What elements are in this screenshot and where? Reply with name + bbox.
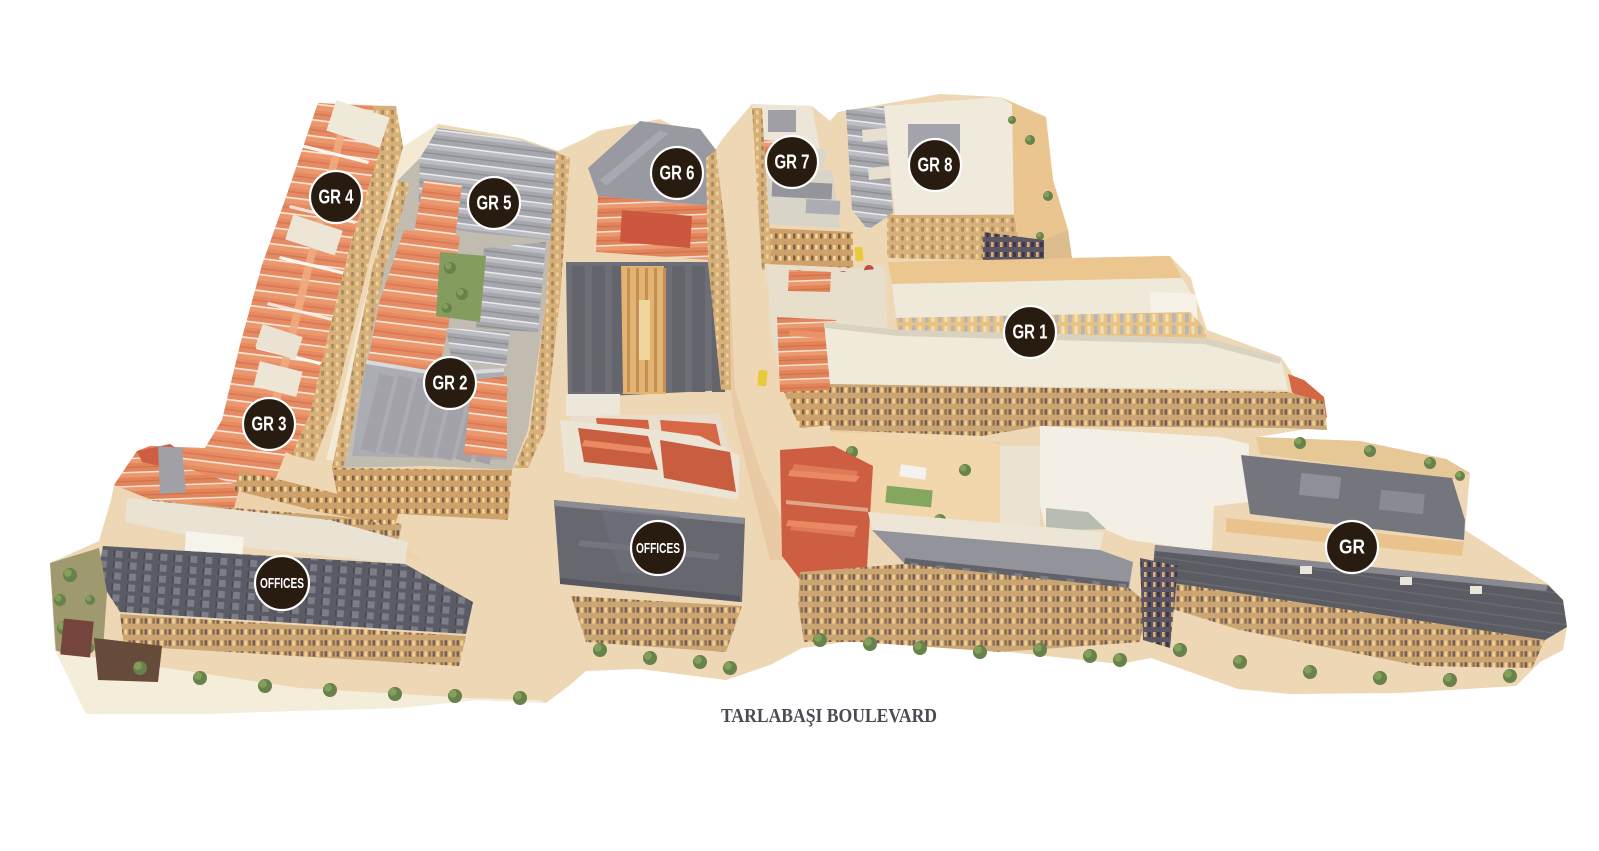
svg-text:GR 3: GR 3 — [252, 414, 287, 436]
svg-text:GR: GR — [1339, 537, 1365, 559]
svg-text:GR 6: GR 6 — [660, 163, 695, 185]
svg-text:GR 4: GR 4 — [319, 187, 355, 209]
svg-text:OFFICES: OFFICES — [260, 575, 304, 592]
svg-text:GR 2: GR 2 — [433, 373, 468, 395]
svg-text:GR 1: GR 1 — [1013, 322, 1048, 344]
svg-text:GR 7: GR 7 — [775, 152, 810, 174]
svg-text:TARLABAŞI BOULEVARD: TARLABAŞI BOULEVARD — [721, 705, 937, 727]
svg-text:GR 5: GR 5 — [477, 193, 512, 215]
svg-text:OFFICES: OFFICES — [636, 540, 680, 557]
svg-text:GR 8: GR 8 — [918, 155, 953, 177]
